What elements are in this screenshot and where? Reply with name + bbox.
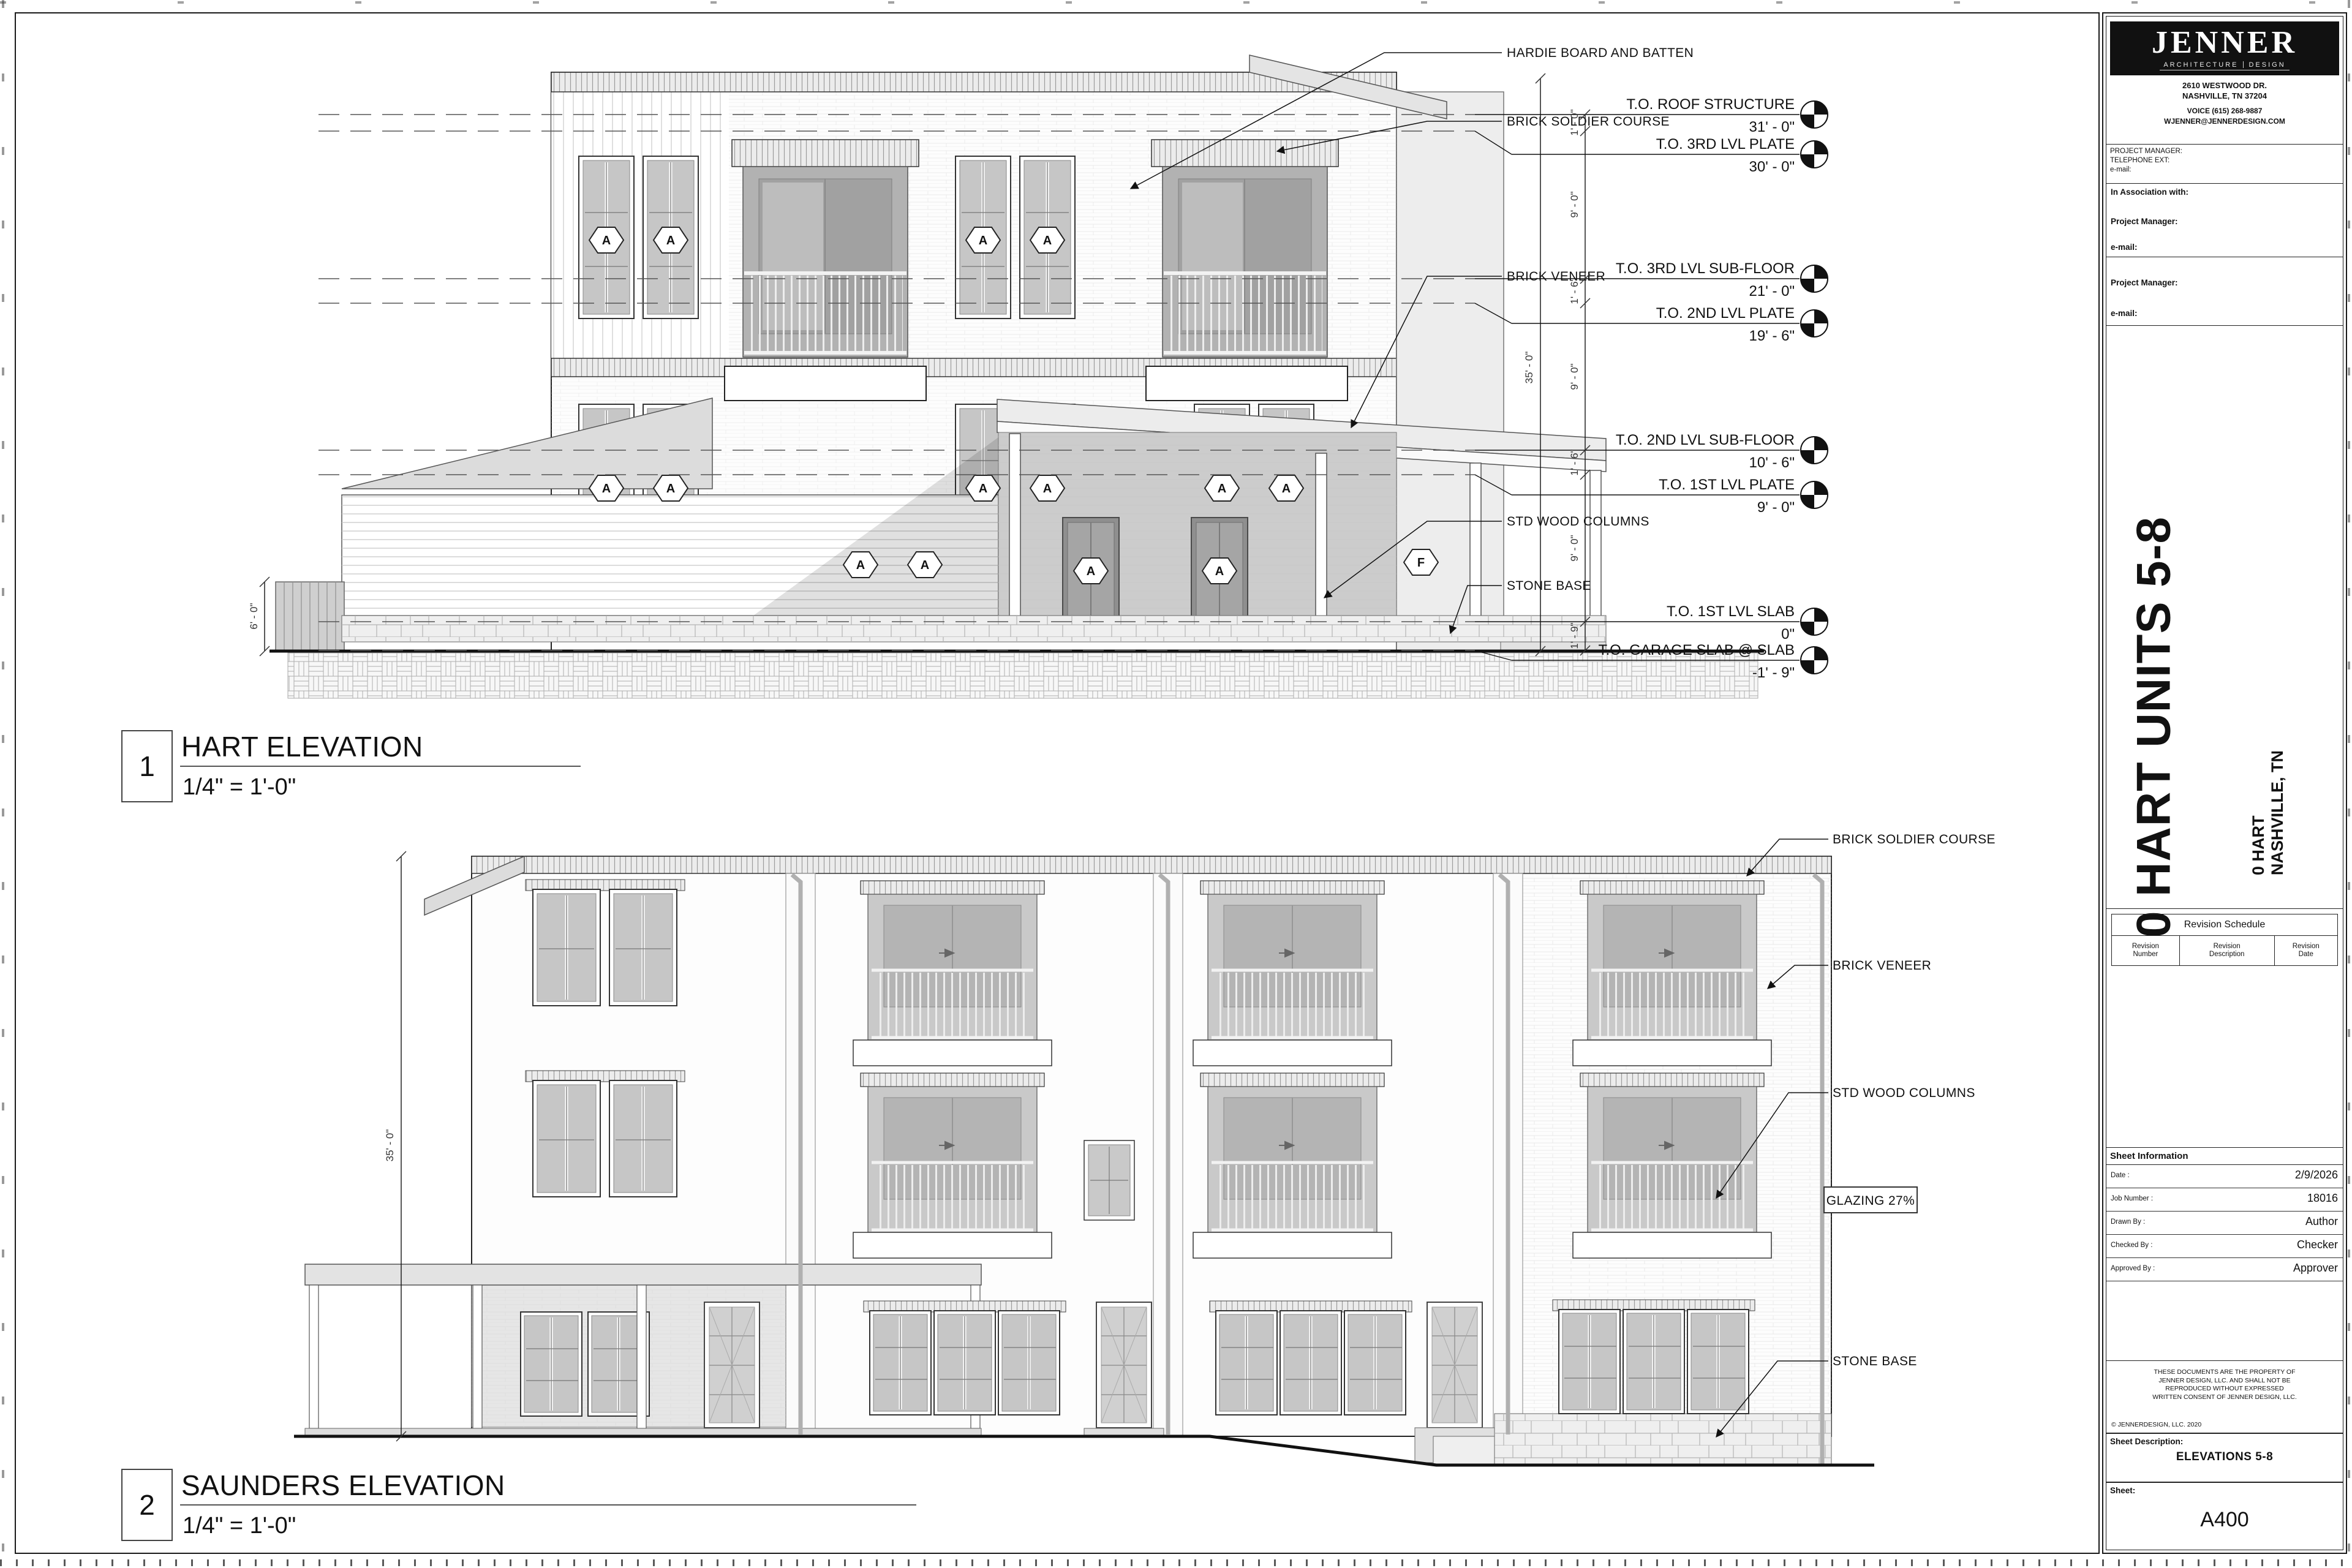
firm-phone: VOICE (615) 268-9887 [2106,106,2343,116]
level-label: T.O. 3RD LVL PLATE [1656,136,1795,153]
view-number: 2 [121,1469,173,1541]
label-glazing: GLAZING 27% [1826,1194,1915,1208]
view-title-1: 1 HART ELEVATION 1/4" = 1'-0" [121,730,581,802]
svg-text:1' - 6": 1' - 6" [1569,277,1580,304]
sheet-number-block: Sheet: A400 [2106,1482,2343,1550]
pm-line2: TELEPHONE EXT: [2110,156,2339,165]
svg-text:35' - 0": 35' - 0" [384,1129,396,1162]
association-block: In Association with: Project Manager: e-… [2106,183,2343,257]
level-value: 9' - 0" [1757,499,1795,516]
si-row-approved-by: Approved By : Approver [2106,1258,2343,1281]
firm-tagline-left: ARCHITECTURE [2163,61,2238,69]
dimensions-el2: 35' - 0" [384,851,406,1441]
consultant-block: Project Manager: e-mail: [2106,257,2343,326]
svg-text:A: A [979,482,987,496]
revision-col-date: RevisionDate [2275,936,2337,965]
consultant-email: e-mail: [2111,309,2138,318]
level-label: T.O. ROOF STRUCTURE [1626,96,1795,113]
consultant-pm: Project Manager: [2111,278,2178,287]
firm-address-2: NASHVILLE, TN 37204 [2106,91,2343,101]
level-value: 10' - 6" [1749,454,1795,471]
revision-schedule-title: Revision Schedule [2112,914,2337,936]
label-brick-veneer: BRICK VENEER [1507,269,1605,284]
copyright-line: REPRODUCED WITHOUT EXPRESSED [2106,1385,2343,1393]
firm-block: JENNER ARCHITECTUREDESIGN 2610 WESTWOOD … [2106,17,2343,144]
fence [276,582,344,651]
si-row-checked-by: Checked By : Checker [2106,1235,2343,1258]
svg-text:9' - 0": 9' - 0" [1569,535,1580,561]
sheet-description-value: ELEVATIONS 5-8 [2106,1450,2343,1464]
svg-text:9' - 0": 9' - 0" [1569,363,1580,390]
copyright-block: THESE DOCUMENTS ARE THE PROPERTY OF JENN… [2106,1360,2343,1433]
label-stone-base: STONE BASE [1833,1354,1917,1368]
level-value: 31' - 0" [1749,119,1795,135]
view-scale: 1/4" = 1'-0" [180,774,581,801]
association-pm: Project Manager: [2111,217,2178,226]
level-label: T.O. 3RD LVL SUB-FLOOR [1616,260,1795,277]
label-wood-columns: STD WOOD COLUMNS [1507,514,1649,529]
small-window [1084,1140,1134,1220]
project-address: 0 HART NASHVILLE, TN [2249,750,2287,875]
project-address-line2: NASHVILLE, TN [2268,750,2287,875]
svg-text:A: A [666,234,675,247]
svg-text:A: A [1218,482,1226,496]
sheet-information-title: Sheet Information [2106,1148,2343,1165]
level-label: T.O. 1ST LVL SLAB [1667,603,1795,620]
svg-text:1' - 6": 1' - 6" [1569,449,1580,475]
svg-text:A: A [1282,482,1291,496]
level-value: 30' - 0" [1749,159,1795,175]
label-stone-base: STONE BASE [1507,579,1591,593]
level-label: T.O. 2ND LVL PLATE [1656,305,1795,322]
pm-line3: e-mail: [2110,165,2339,175]
level-label: T.O. GARAGE SLAB @ SLAB [1599,642,1795,658]
si-row-date: Date : 2/9/2026 [2106,1165,2343,1188]
label-brick-veneer: BRICK VENEER [1833,959,1931,973]
svg-text:9' - 0": 9' - 0" [1569,191,1580,217]
svg-text:1' - 9": 1' - 9" [1569,622,1580,649]
drawing-sheet: A A A A A A A A A A A A A A F [0,0,2352,1568]
label-hardie-board: HARDIE BOARD AND BATTEN [1507,46,1694,60]
level-value: 19' - 6" [1749,328,1795,344]
association-email: e-mail: [2111,243,2138,252]
project-title: 0 HART UNITS 5-8 [2126,516,2182,938]
copyright-line: JENNER DESIGN, LLC. AND SHALL NOT BE [2106,1377,2343,1385]
revision-schedule: Revision Schedule RevisionNumber Revisio… [2106,908,2343,1148]
saunders-elevation-drawing: 35' - 0" BRICK SOLDIER COURSE BRICK VENE… [294,832,1996,1465]
pm-line1: PROJECT MANAGER: [2110,147,2339,156]
association-title: In Association with: [2111,187,2188,197]
view-number: 1 [121,730,173,802]
firm-email: WJENNER@JENNERDESIGN.COM [2106,116,2343,127]
svg-text:F: F [1417,556,1425,570]
svg-text:A: A [666,482,675,496]
svg-text:6' - 0": 6' - 0" [248,603,260,629]
view-name: HART ELEVATION [180,730,581,767]
sheet-number-label: Sheet: [2106,1483,2343,1498]
copyright-line: WRITTEN CONSENT OF JENNER DESIGN, LLC. [2106,1393,2343,1402]
revision-col-number: RevisionNumber [2112,936,2180,965]
label-brick-soldier: BRICK SOLDIER COURSE [1833,832,1996,846]
revision-col-description: RevisionDescription [2180,936,2275,965]
level-value: 21' - 0" [1749,283,1795,300]
label-brick-soldier: BRICK SOLDIER COURSE [1507,115,1670,129]
svg-text:A: A [1215,565,1224,578]
level-label: T.O. 2ND LVL SUB-FLOOR [1616,432,1795,448]
level-value: 0" [1781,626,1795,643]
view-scale: 1/4" = 1'-0" [180,1513,916,1539]
sheet-description-block: Sheet Description: ELEVATIONS 5-8 [2106,1433,2343,1483]
svg-text:A: A [1043,482,1052,496]
svg-text:A: A [1087,565,1095,578]
svg-text:A: A [921,559,929,572]
project-manager-block: PROJECT MANAGER: TELEPHONE EXT: e-mail: [2106,144,2343,189]
title-block: JENNER ARCHITECTUREDESIGN 2610 WESTWOOD … [2102,12,2347,1554]
level-callouts-el1: T.O. ROOF STRUCTURE 31' - 0" T.O. 3RD LV… [1475,96,1828,681]
firm-tagline-right: DESIGN [2248,61,2285,69]
level-label: T.O. 1ST LVL PLATE [1659,477,1795,493]
svg-text:A: A [602,482,611,496]
copyright-line: THESE DOCUMENTS ARE THE PROPERTY OF [2106,1368,2343,1377]
si-row-job-number: Job Number : 18016 [2106,1188,2343,1212]
sheet-information: Sheet Information Date : 2/9/2026 Job Nu… [2106,1147,2343,1361]
svg-text:A: A [979,234,987,247]
svg-text:A: A [856,559,865,572]
sheet-description-label: Sheet Description: [2106,1434,2343,1449]
sheet-number-value: A400 [2106,1508,2343,1532]
copyright-notice: © JENNERDESIGN, LLC. 2020 [2111,1421,2201,1428]
hart-elevation-drawing: A A A A A A A A A A A A A A F [248,46,1828,698]
view-name: SAUNDERS ELEVATION [180,1469,916,1506]
project-address-line1: 0 HART [2249,750,2268,875]
level-value: -1' - 9" [1752,665,1795,681]
si-row-drawn-by: Drawn By : Author [2106,1212,2343,1235]
svg-text:A: A [602,234,611,247]
firm-address-1: 2610 WESTWOOD DR. [2106,80,2343,91]
view-title-2: 2 SAUNDERS ELEVATION 1/4" = 1'-0" [121,1469,916,1541]
svg-text:35' - 0": 35' - 0" [1523,352,1535,384]
label-wood-columns: STD WOOD COLUMNS [1833,1086,1975,1100]
firm-logo: JENNER ARCHITECTUREDESIGN [2110,21,2339,75]
firm-name: JENNER [2152,27,2297,59]
svg-text:1' - 0": 1' - 0" [1569,109,1580,135]
svg-text:A: A [1043,234,1052,247]
